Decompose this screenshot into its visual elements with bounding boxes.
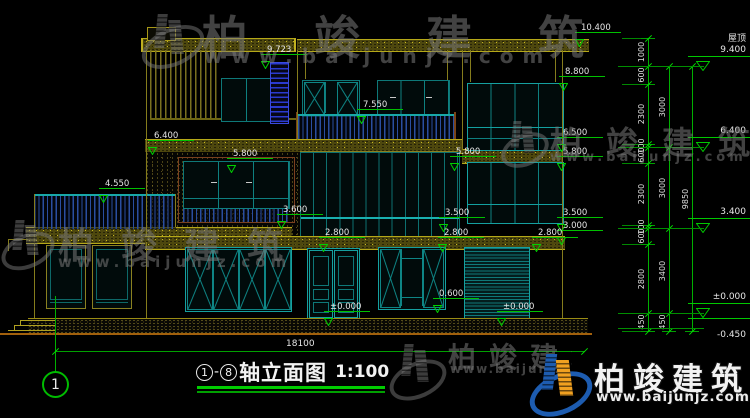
elevation-value: 8.800 — [565, 68, 589, 76]
dim-text: 600 — [638, 135, 646, 175]
elevation-flag-line — [688, 318, 750, 319]
elevation-value: 2.800 — [538, 229, 562, 237]
elevation-marker: 2.800 — [319, 229, 369, 246]
elevation-triangle-icon — [261, 54, 270, 73]
elevation-triangle-icon — [559, 76, 568, 95]
elevation-triangle-icon — [357, 109, 366, 128]
title-underline-2 — [197, 391, 385, 393]
elevation-value: 3.500 — [563, 209, 587, 217]
elevation-value: ±0.000 — [688, 292, 746, 302]
elevation-marker: 3.500 — [439, 209, 489, 226]
level-connector-line — [618, 313, 704, 314]
elevation-value: 2.800 — [325, 229, 349, 237]
elevation-value: 5.800 — [563, 148, 587, 156]
elevation-triangle-icon — [324, 311, 333, 330]
title-text: 轴立面图 — [239, 357, 327, 387]
elevation-value: ±0.000 — [330, 303, 361, 311]
elevation-value: 6.400 — [154, 132, 178, 140]
title-axis-bubble-end: 8 — [220, 364, 237, 381]
dim-text: 600 — [638, 55, 646, 95]
title-underline — [197, 386, 385, 389]
title-scale: 1:100 — [335, 362, 389, 382]
elevation-value: 6.400 — [688, 126, 746, 136]
elevation-marker: ±0.000 — [497, 303, 547, 320]
elevation-triangle-icon — [497, 311, 506, 330]
elevation-value: 9.723 — [267, 46, 291, 54]
dim-text: 450 — [659, 302, 667, 342]
elevation-marker: 4.550 — [99, 180, 149, 197]
elevation-marker: ±0.000 — [324, 303, 374, 320]
elevation-value: 3.500 — [445, 209, 469, 217]
dim-text: 2800 — [638, 259, 646, 299]
elevation-name: 屋顶 — [688, 34, 746, 44]
elevation-triangle-icon — [532, 237, 541, 256]
level-connector-line — [618, 228, 704, 229]
elevation-value: 5.800 — [233, 150, 257, 158]
elevation-triangle-icon — [277, 214, 286, 233]
elevation-value: 4.550 — [105, 180, 129, 188]
elevation-triangle-icon — [148, 140, 157, 159]
elevation-marker: 8.800 — [559, 68, 609, 85]
elevation-marker: 9.723 — [261, 46, 311, 63]
level-connector-line — [618, 66, 704, 67]
elevation-value: 9.400 — [688, 45, 746, 55]
elevation-triangle-icon — [227, 158, 236, 177]
elevation-marker: 5.800 — [557, 148, 607, 165]
elevation-value: 6.500 — [563, 129, 587, 137]
level-connector-line — [618, 328, 704, 329]
title-axis-bubble-start: 1 — [196, 364, 213, 381]
elevation-value: 0.600 — [439, 290, 463, 298]
elevation-triangle-icon — [450, 156, 459, 175]
elevation-value: 2.800 — [444, 229, 468, 237]
elevation-value: 3.600 — [283, 206, 307, 214]
elevation-marker: 5.800 — [227, 150, 277, 167]
elevation-marker: 3.600 — [277, 206, 327, 223]
elevation-marker: 0.600 — [433, 290, 483, 307]
elevation-value: ±0.000 — [503, 303, 534, 311]
elevation-marker: 2.800 — [438, 229, 488, 246]
dim-text: 3400 — [659, 251, 667, 291]
elevation-triangle-icon — [433, 298, 442, 317]
elevation-marker: 6.400 — [148, 132, 198, 149]
title-dash: - — [214, 364, 219, 380]
dim-chain-line — [669, 66, 670, 331]
elevation-triangle-icon — [557, 156, 566, 175]
dim-text: 450 — [638, 302, 646, 342]
elevation-triangle-icon — [319, 237, 328, 256]
level-connector-line — [618, 147, 704, 148]
annotation-layer: 9.72310.4008.8007.5506.4005.8005.8006.50… — [0, 0, 750, 418]
elevation-triangle-icon — [575, 32, 584, 51]
elevation-marker: 7.550 — [357, 101, 407, 118]
elevation-triangle-icon — [99, 188, 108, 207]
drawing-title: 1 - 8 轴立面图 1:100 — [196, 357, 389, 387]
dim-text: 600 — [638, 216, 646, 256]
dim-text: 3000 — [659, 87, 667, 127]
elevation-value: 10.400 — [581, 24, 611, 32]
elevation-marker: 10.400 — [575, 24, 625, 41]
elevation-marker: 6.500 — [557, 129, 607, 146]
cad-elevation-drawing: 18100 1 9.72310.4008.8007.5506.4005.8005… — [0, 0, 750, 418]
elevation-value: 5.800 — [456, 148, 480, 156]
elevation-value: 3.400 — [688, 207, 746, 217]
elevation-marker: 5.800 — [450, 148, 500, 165]
elevation-marker: 2.800 — [532, 229, 582, 246]
elevation-triangle-icon — [438, 237, 447, 256]
elevation-value: 7.550 — [363, 101, 387, 109]
elevation-value: -0.450 — [688, 330, 746, 340]
dim-text: 3000 — [659, 168, 667, 208]
